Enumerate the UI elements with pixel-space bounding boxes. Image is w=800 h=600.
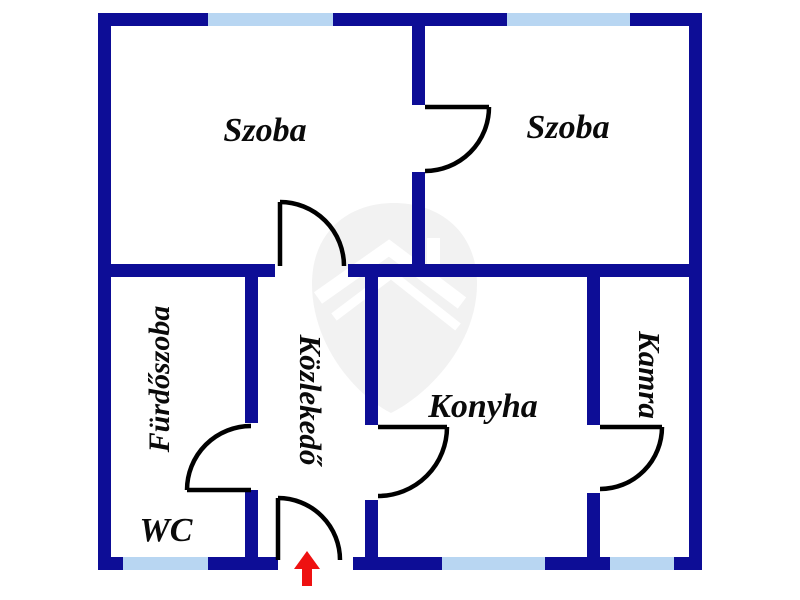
wall-pantry-bottom [587, 493, 600, 570]
label-wc: WC [140, 512, 193, 549]
wall-kitchen-bottom [365, 500, 378, 570]
window-kitchen [442, 557, 545, 570]
window-szoba-right [507, 13, 630, 26]
door-entrance [278, 498, 340, 560]
door-pantry [600, 427, 662, 489]
wall-outer-left [98, 13, 111, 570]
floor-plan-canvas: Szoba Szoba Fürdőszoba WC Közlekedő Kony… [0, 0, 800, 600]
label-kozlekedo: Közlekedő [293, 334, 328, 468]
floor-plan: Szoba Szoba Fürdőszoba WC Közlekedő Kony… [0, 0, 800, 600]
door-bathroom [187, 426, 251, 490]
window-bathroom [123, 557, 208, 570]
window-szoba-left [208, 13, 333, 26]
label-furdoszoba: Fürdőszoba [143, 306, 176, 454]
wall-szoba-divider-bottom [412, 172, 425, 264]
wall-outer-right [689, 13, 702, 570]
entrance-arrow-icon [294, 551, 320, 586]
wall-szoba-divider-top [412, 13, 425, 105]
door-kitchen [378, 427, 447, 496]
label-szoba-left: Szoba [223, 112, 306, 149]
wall-kitchen-top [365, 264, 378, 425]
wall-pantry-top [587, 264, 600, 425]
wall-bathroom-top [245, 264, 258, 423]
watermark-chimney-icon [427, 238, 440, 266]
door-between-szoba-rooms [425, 107, 489, 171]
wall-middle-right [348, 264, 702, 277]
window-pantry [610, 557, 674, 570]
label-konyha: Konyha [427, 388, 538, 425]
label-kamra: Kamra [632, 330, 667, 419]
wall-bathroom-bottom [245, 490, 258, 570]
label-szoba-right: Szoba [526, 109, 609, 146]
